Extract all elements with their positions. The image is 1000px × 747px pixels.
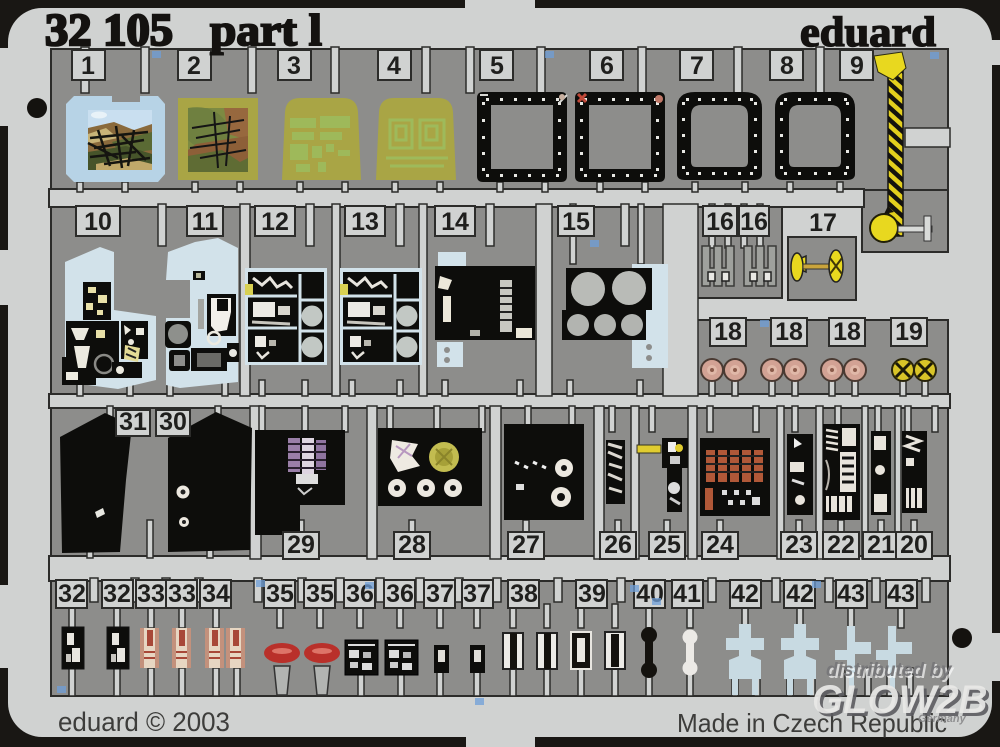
- svg-text:20: 20: [900, 531, 928, 559]
- svg-text:7: 7: [690, 52, 704, 80]
- svg-text:41: 41: [673, 580, 701, 608]
- svg-text:Germany: Germany: [918, 713, 967, 725]
- svg-text:28: 28: [398, 531, 426, 559]
- svg-text:31: 31: [119, 408, 147, 436]
- svg-text:9: 9: [850, 52, 864, 80]
- svg-text:39: 39: [578, 580, 606, 608]
- svg-text:37: 37: [426, 580, 454, 608]
- svg-text:34: 34: [202, 580, 230, 608]
- svg-text:12: 12: [261, 208, 289, 236]
- svg-text:10: 10: [84, 208, 112, 236]
- svg-text:35: 35: [306, 580, 334, 608]
- svg-text:8: 8: [780, 52, 794, 80]
- svg-text:17: 17: [809, 209, 837, 237]
- svg-text:23: 23: [785, 531, 813, 559]
- svg-text:15: 15: [562, 208, 590, 236]
- svg-text:24: 24: [706, 531, 734, 559]
- svg-text:32: 32: [103, 580, 131, 608]
- svg-text:part l: part l: [210, 6, 322, 55]
- svg-text:43: 43: [837, 580, 865, 608]
- svg-text:33: 33: [137, 580, 165, 608]
- svg-text:13: 13: [351, 208, 379, 236]
- svg-text:25: 25: [653, 531, 681, 559]
- svg-text:11: 11: [192, 208, 219, 236]
- svg-text:30: 30: [159, 408, 187, 436]
- svg-text:33: 33: [168, 580, 196, 608]
- svg-text:38: 38: [510, 580, 538, 608]
- svg-text:5: 5: [490, 52, 504, 80]
- svg-text:eduard © 2003: eduard © 2003: [58, 707, 230, 737]
- svg-text:6: 6: [600, 52, 614, 80]
- svg-text:36: 36: [386, 580, 414, 608]
- svg-text:32 105: 32 105: [45, 4, 173, 55]
- svg-text:16: 16: [706, 208, 734, 236]
- svg-text:27: 27: [512, 531, 540, 559]
- svg-text:35: 35: [266, 580, 294, 608]
- svg-text:18: 18: [833, 318, 861, 346]
- svg-text:42: 42: [731, 580, 759, 608]
- svg-text:26: 26: [604, 531, 632, 559]
- svg-text:eduard: eduard: [800, 10, 936, 56]
- svg-text:18: 18: [775, 318, 803, 346]
- svg-text:29: 29: [287, 531, 315, 559]
- svg-text:32: 32: [58, 580, 86, 608]
- svg-text:4: 4: [387, 52, 401, 80]
- svg-text:2: 2: [187, 52, 201, 80]
- svg-text:19: 19: [895, 318, 923, 346]
- svg-text:21: 21: [867, 531, 895, 559]
- svg-text:18: 18: [714, 318, 742, 346]
- svg-text:22: 22: [827, 531, 855, 559]
- svg-text:1: 1: [81, 52, 95, 80]
- svg-text:16: 16: [740, 208, 768, 236]
- svg-text:14: 14: [441, 208, 469, 236]
- svg-text:37: 37: [463, 580, 491, 608]
- svg-text:42: 42: [786, 580, 814, 608]
- svg-text:3: 3: [287, 52, 301, 80]
- svg-text:43: 43: [887, 580, 915, 608]
